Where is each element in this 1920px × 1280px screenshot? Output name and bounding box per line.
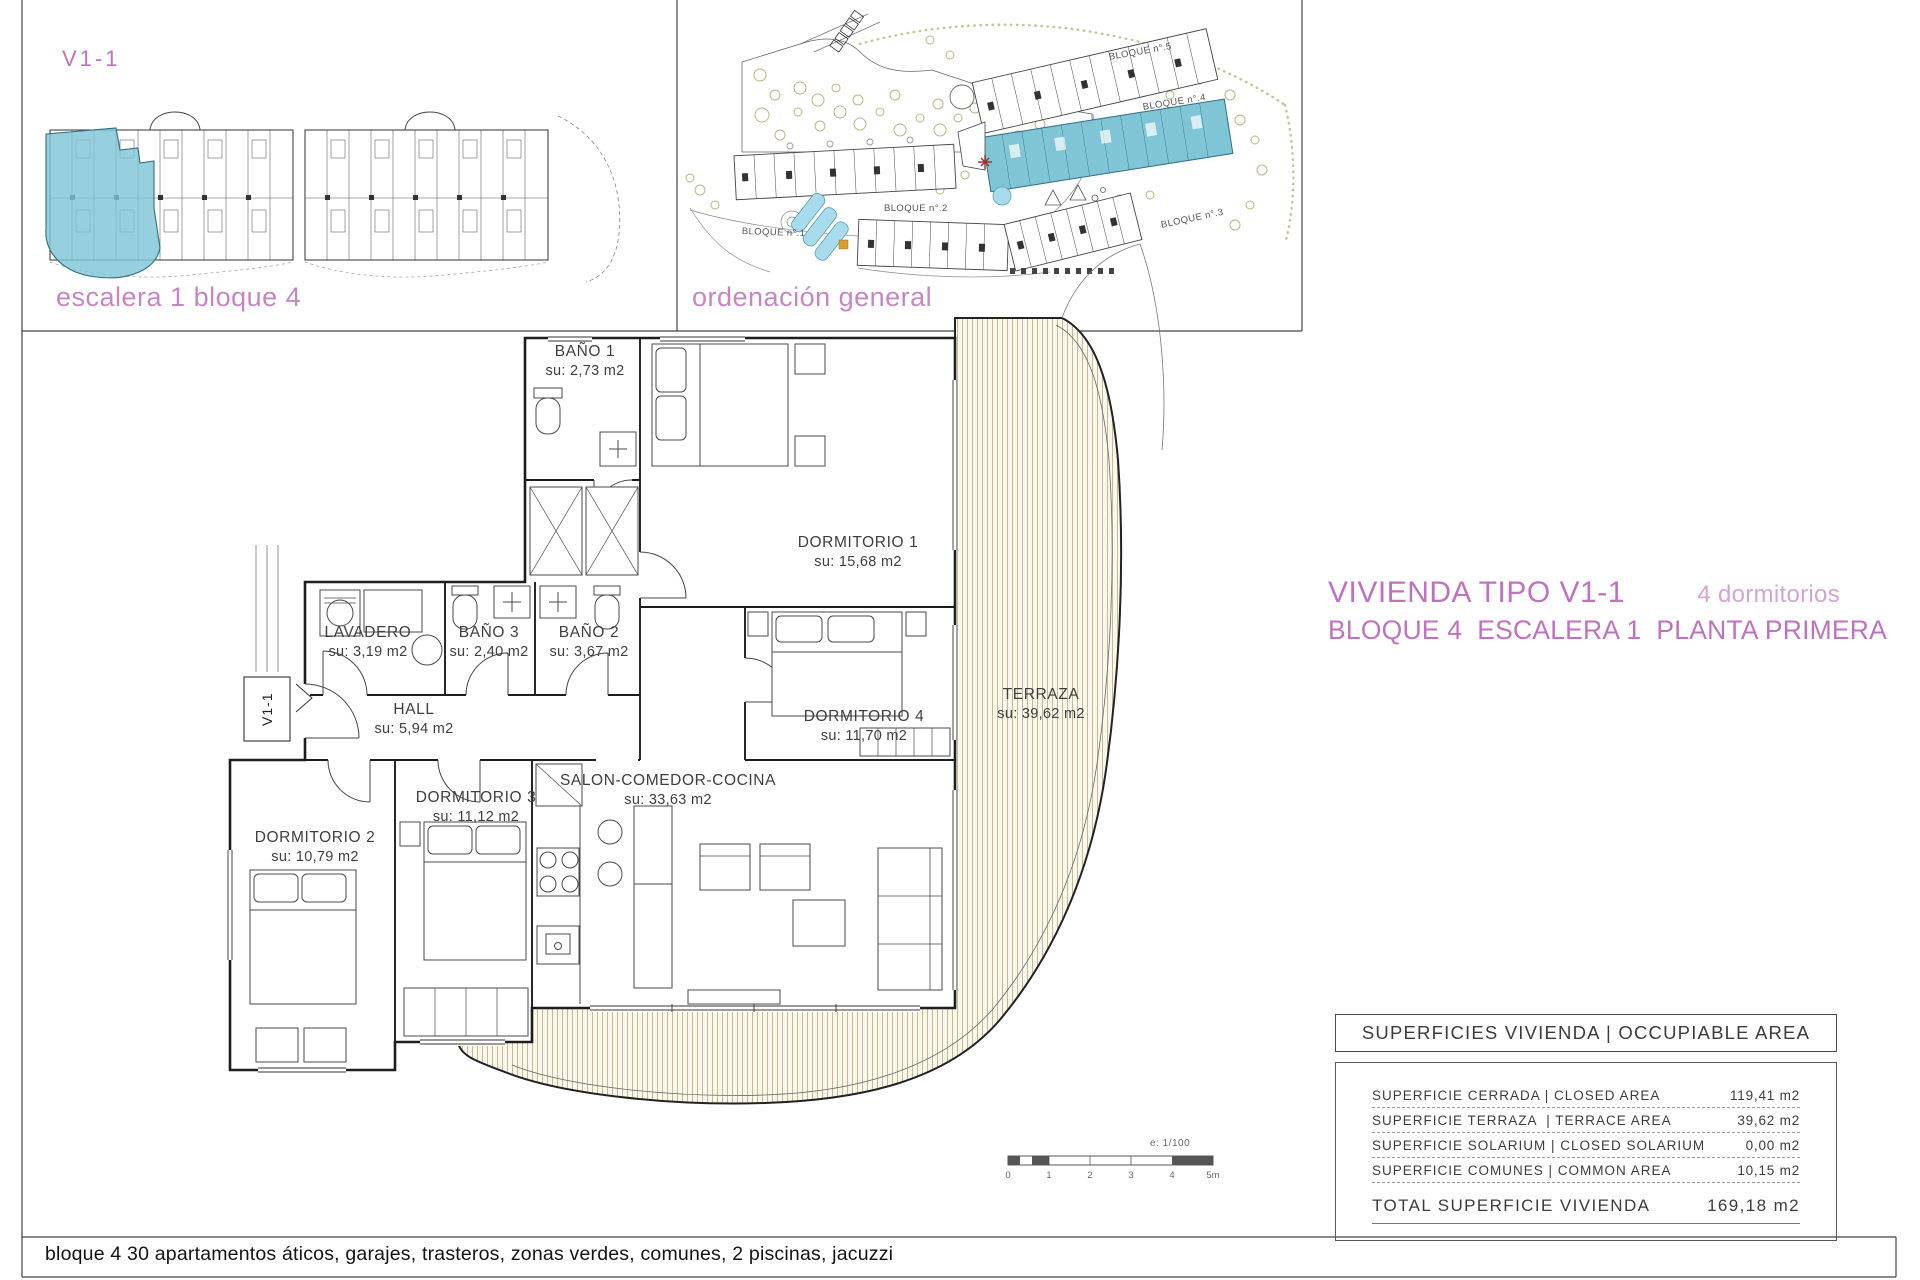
title-block: VIVIENDA TIPO V1-1 4 dormitorios BLOQUE …	[1328, 576, 1840, 646]
unit-tag-label: V1-1	[244, 677, 290, 741]
scale-note: e: 1/100	[1150, 1138, 1190, 1149]
room-label-bano1: BAÑO 1 su: 2,73 m2	[545, 341, 624, 382]
scale-tick-5: 5m	[1206, 1170, 1219, 1181]
plan-sheet: V1-1 escalera 1 bloque 4 ordenación gene…	[0, 0, 1920, 1280]
table-row-solarium-area: SUPERFICIE SOLARIUM | CLOSED SOLARIUM 0,…	[1372, 1133, 1800, 1158]
scale-tick-2: 2	[1087, 1170, 1092, 1181]
table-row-closed-area: SUPERFICIE CERRADA | CLOSED AREA 119,41 …	[1372, 1083, 1800, 1108]
scale-tick-1: 1	[1046, 1170, 1051, 1181]
site-round-pool	[993, 187, 1011, 205]
table-row-total: TOTAL SUPERFICIE VIVIENDA 169,18 m2	[1372, 1192, 1800, 1224]
room-label-bano2: BAÑO 2 su: 3,67 m2	[549, 622, 628, 663]
site-label-bloque1: BLOQUE n°.1	[742, 226, 806, 239]
room-label-salon: SALON-COMEDOR-COCINA su: 33,63 m2	[560, 770, 776, 811]
dwelling-type-title: VIVIENDA TIPO V1-1	[1328, 576, 1625, 610]
room-label-dormitorio3: DORMITORIO 3 su: 11,12 m2	[416, 787, 537, 828]
elevation-drawing	[46, 112, 620, 282]
table-row-terrace-area: SUPERFICIE TERRAZA | TERRACE AREA 39,62 …	[1372, 1108, 1800, 1133]
site-building-1	[734, 144, 956, 199]
site-building-3	[1004, 193, 1142, 271]
panel-unit-title: V1-1	[62, 46, 120, 72]
bedrooms-note: 4 dormitorios	[1697, 581, 1840, 609]
site-building-2	[857, 219, 1009, 270]
panel-unit-caption: escalera 1 bloque 4	[56, 282, 301, 313]
site-label-bloque2: BLOQUE n°.2	[884, 203, 948, 214]
site-pools	[784, 191, 855, 263]
scale-tick-3: 3	[1128, 1170, 1133, 1181]
room-label-hall: HALL su: 5,94 m2	[374, 699, 453, 740]
room-label-bano3: BAÑO 3 su: 2,40 m2	[449, 622, 528, 663]
table-row-common-area: SUPERFICIE COMUNES | COMMON AREA 10,15 m…	[1372, 1158, 1800, 1183]
room-label-dormitorio1: DORMITORIO 1 su: 15,68 m2	[798, 532, 919, 573]
scale-tick-0: 0	[1005, 1170, 1010, 1181]
panel-site-caption: ordenación general	[692, 282, 932, 313]
scale-tick-4: 4	[1169, 1170, 1174, 1181]
room-label-dormitorio2: DORMITORIO 2 su: 10,79 m2	[255, 827, 376, 868]
scale-bar	[1008, 1156, 1213, 1165]
room-label-lavadero: LAVADERO su: 3,19 m2	[325, 622, 412, 663]
footer-note: bloque 4 30 apartamentos áticos, garajes…	[45, 1243, 893, 1266]
highlighted-unit-shape	[46, 128, 160, 278]
room-label-dormitorio4: DORMITORIO 4 su: 11,70 m2	[804, 706, 925, 747]
room-label-terraza: TERRAZA su: 39,62 m2	[997, 684, 1084, 725]
areas-table: SUPERFICIES VIVIENDA | OCCUPIABLE AREA S…	[1335, 1014, 1837, 1241]
areas-table-header: SUPERFICIES VIVIENDA | OCCUPIABLE AREA	[1335, 1014, 1837, 1052]
areas-table-body: SUPERFICIE CERRADA | CLOSED AREA 119,41 …	[1335, 1062, 1837, 1241]
location-line: BLOQUE 4 ESCALERA 1 PLANTA PRIMERA	[1328, 615, 1840, 646]
